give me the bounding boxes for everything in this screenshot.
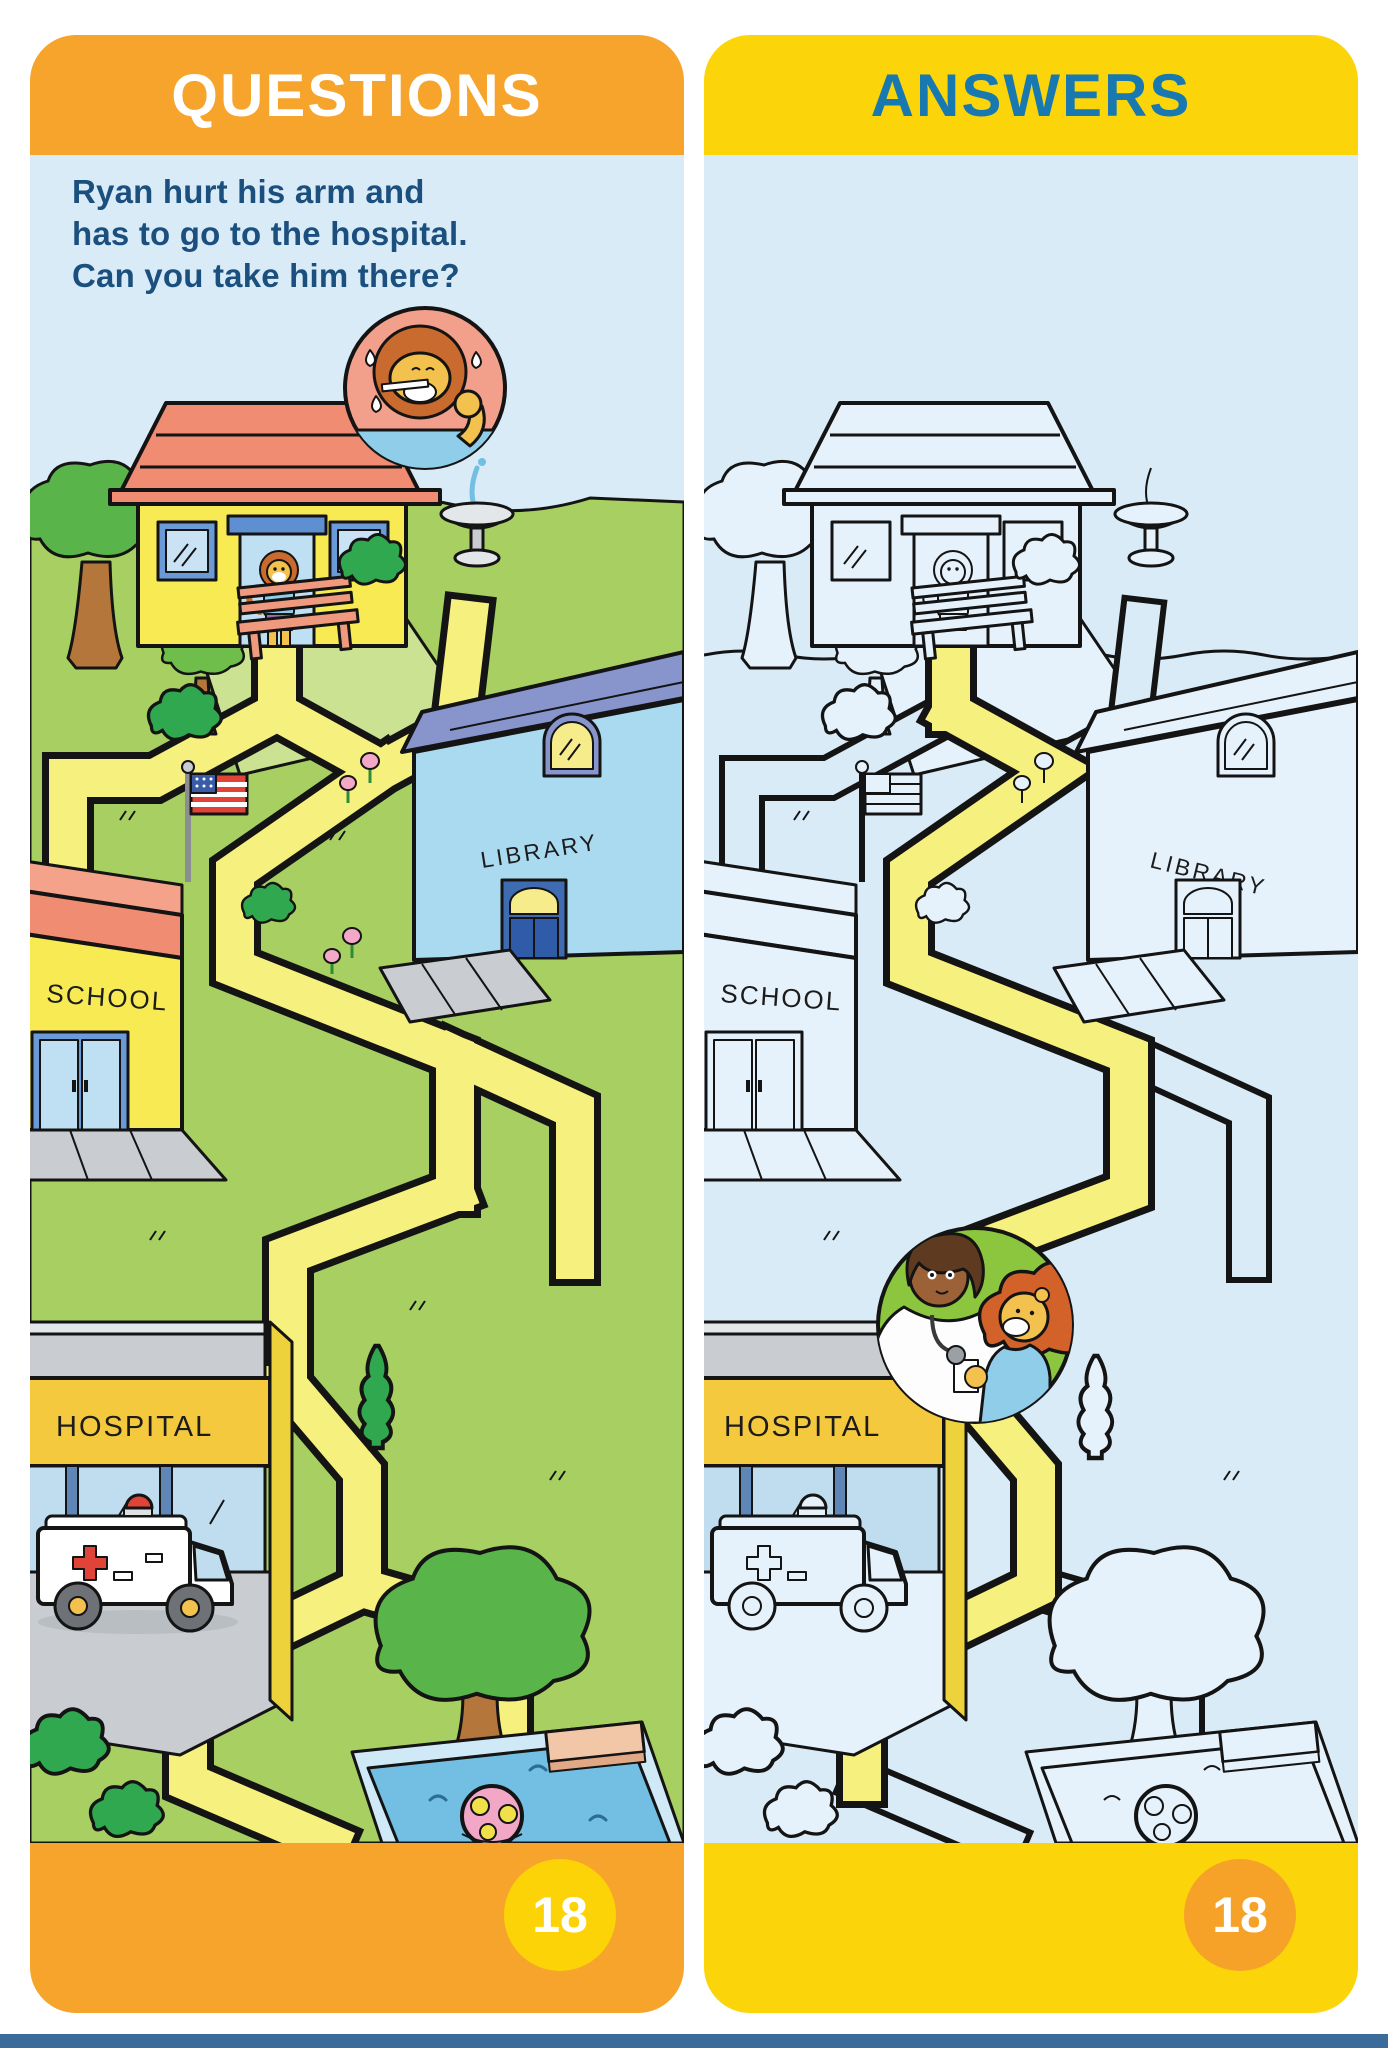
answers-header-label: ANSWERS [871,61,1192,130]
questions-panel: QUESTIONS Ryan hurt his arm and has to g… [30,35,684,2013]
answers-body: SCHOOL [704,155,1358,1843]
question-line: Ryan hurt his arm and [72,171,468,213]
questions-header: QUESTIONS [30,35,684,155]
house-window [158,522,216,580]
page-number: 18 [532,1886,588,1944]
hospital-label: HOSPITAL [724,1411,881,1443]
answers-header: ANSWERS [704,35,1358,155]
hospital-label: HOSPITAL [56,1411,213,1443]
questions-maze-illustration: SCHOOL [30,300,684,1843]
questions-header-label: QUESTIONS [171,61,542,130]
book-edge-strip [0,2034,1388,2048]
bush-illustration [30,1709,109,1774]
question-line: has to go to the hospital. [72,213,468,255]
question-line: Can you take him there? [72,255,468,297]
bush-illustration [704,1709,783,1774]
page-number: 18 [1212,1886,1268,1944]
questions-footer: 18 [30,1843,684,2013]
diving-board [546,1722,646,1772]
activity-book-spread: QUESTIONS Ryan hurt his arm and has to g… [0,0,1388,2048]
answers-footer: 18 [704,1843,1358,2013]
questions-body: Ryan hurt his arm and has to go to the h… [30,155,684,1843]
answers-maze-illustration: SCHOOL [704,155,1358,1843]
page-number-badge: 18 [504,1859,616,1971]
door-header [228,516,326,534]
answers-panel: ANSWERS [704,35,1358,2013]
page-number-badge: 18 [1184,1859,1296,1971]
